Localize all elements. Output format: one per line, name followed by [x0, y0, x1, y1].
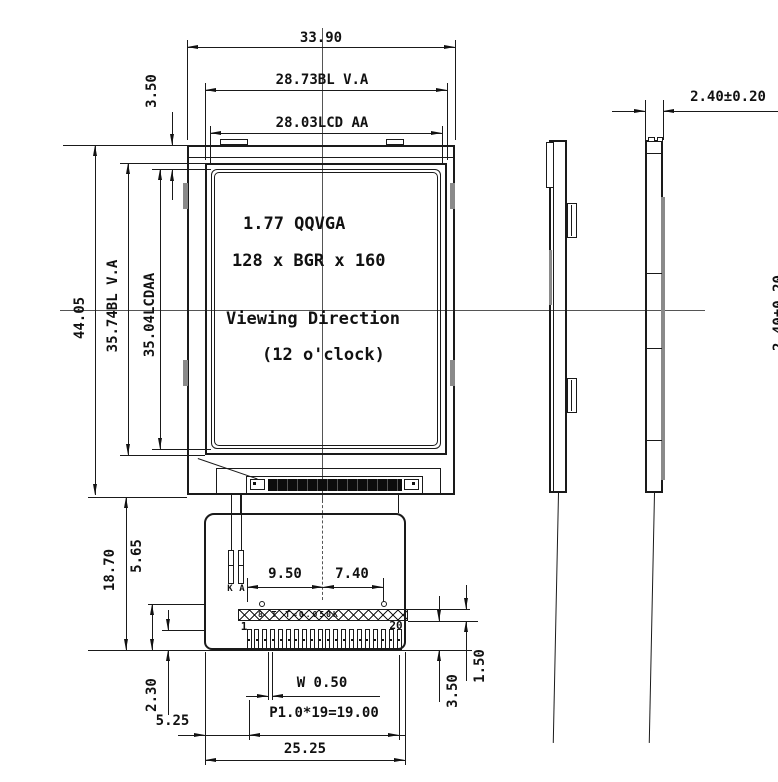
dim-line-overall-height — [95, 145, 96, 495]
ext-line — [399, 655, 400, 740]
side-view1-tab-upper — [567, 203, 577, 238]
fpc-pin-dot — [319, 639, 321, 641]
dim-line-lcdaa-width — [210, 133, 442, 134]
ext-line — [268, 652, 269, 700]
arrowhead — [150, 639, 154, 650]
arrowhead — [323, 585, 334, 589]
arrowhead — [247, 585, 258, 589]
ext-line — [247, 578, 248, 602]
frame-top-lip-line — [189, 157, 453, 158]
ext-line — [405, 652, 406, 765]
arrowhead — [437, 610, 441, 621]
fpc-pin-dot — [374, 639, 376, 641]
dim-line-fpc-total — [126, 497, 127, 650]
dim-fpc-upper: 5.65 — [130, 531, 144, 581]
dim-thickness-clipped: 2.40±0.20 — [772, 268, 778, 358]
ext-line — [383, 578, 384, 602]
frame-bottom-step-line — [216, 468, 440, 469]
side-view1-top-step — [546, 142, 554, 188]
arrowhead — [663, 109, 674, 113]
dim-thickness: 2.40±0.20 — [678, 90, 778, 104]
backlight-pin-a-mark — [238, 565, 244, 566]
ext-line — [152, 449, 211, 450]
dim-pin-pitch: P1.0*19=19.00 — [254, 706, 394, 720]
ext-line — [205, 83, 206, 160]
side-view2-layer-line — [646, 273, 662, 274]
arrowhead — [464, 598, 468, 609]
side-view1-fpc-tail — [553, 493, 559, 743]
arrowhead — [394, 758, 405, 762]
fpc-pin-dot — [382, 639, 384, 641]
dim-overall-height: 44.05 — [73, 288, 87, 348]
backlight-pin-k-mark — [228, 565, 234, 566]
dim-connector-width: 25.25 — [275, 742, 335, 756]
arrowhead — [166, 619, 170, 630]
dim-line-pin-width-right — [272, 696, 380, 697]
backlight-pin-a — [238, 550, 244, 584]
viewing-direction-label: Viewing Direction — [226, 309, 400, 329]
backlight-pin-k — [228, 550, 234, 584]
backlight-lead-k — [231, 495, 232, 551]
arrowhead — [272, 694, 283, 698]
arrowhead — [158, 438, 162, 449]
side-view1-shade — [549, 250, 552, 305]
cathode-label: K — [224, 585, 236, 594]
ext-line — [447, 83, 448, 160]
frame-bottom-step-left — [216, 468, 217, 495]
dim-pin-area-height: 3.50 — [446, 666, 460, 716]
fpc-pin-dot — [272, 639, 274, 641]
alignment-hole-left — [259, 601, 265, 607]
ext-line — [63, 145, 187, 146]
ext-line — [88, 497, 187, 498]
arrowhead — [158, 169, 162, 180]
side-view1-inner-line — [553, 142, 554, 491]
arrowhead — [170, 170, 174, 181]
arrowhead — [205, 758, 216, 762]
ext-line — [663, 100, 664, 140]
arrowhead — [436, 88, 447, 92]
arrowhead — [312, 585, 323, 589]
arrowhead — [124, 497, 128, 508]
arrowhead — [249, 733, 260, 737]
side-view1-tab-inner — [571, 380, 572, 411]
dim-blva-height: 35.74BL V.A — [106, 241, 120, 371]
ext-line — [120, 163, 205, 164]
fpc-pin-dot — [343, 639, 345, 641]
fpc-pin-dot — [288, 639, 290, 641]
arrowhead — [437, 650, 441, 661]
arrowhead — [257, 694, 268, 698]
arrowhead — [210, 131, 221, 135]
fpc-pin-dot — [398, 639, 400, 641]
panel-resolution-label: 128 x BGR x 160 — [232, 251, 386, 271]
fpc-pin-dot — [264, 639, 266, 641]
panel-size-label: 1.77 QQVGA — [243, 214, 345, 234]
frame-bottom-step-right — [440, 468, 441, 495]
arrowhead — [126, 163, 130, 174]
fpc-neck-right — [398, 495, 399, 513]
dim-overall-width: 33.90 — [296, 31, 346, 45]
cog-pad-dot — [253, 482, 256, 485]
ext-line — [455, 40, 456, 140]
dim-line-lcdaa-height — [160, 169, 161, 449]
ext-line — [162, 630, 204, 631]
dim-lcdaa-width: 28.03LCD AA — [262, 116, 382, 130]
clock-direction-label: (12 o'clock) — [262, 345, 385, 365]
arrowhead — [444, 45, 455, 49]
arrowhead — [634, 109, 645, 113]
side-view2-top-notch — [648, 137, 655, 142]
dim-line-connector-width — [205, 760, 405, 761]
arrowhead — [93, 484, 97, 495]
side-view1-tab-lower — [567, 378, 577, 413]
arrowhead — [187, 45, 198, 49]
ext-line — [205, 652, 206, 765]
arrowhead — [170, 134, 174, 145]
dim-pin-edge-offset: 5.25 — [145, 714, 200, 728]
arrowhead — [205, 88, 216, 92]
fpc-pin-dot — [366, 639, 368, 641]
arrowhead — [150, 604, 154, 615]
dim-blva-width: 28.73BL V.A — [262, 73, 382, 87]
ext-line — [272, 652, 273, 700]
side-view2-fpc-tail — [649, 493, 655, 743]
dim-top-margin: 3.50 — [145, 66, 159, 116]
side-view2-layer-line — [646, 348, 662, 349]
dim-hole-left: 9.50 — [260, 567, 310, 581]
fpc-pin-dot — [295, 639, 297, 641]
dim-line-pitch — [178, 735, 405, 736]
frame-tab-right-lower — [450, 360, 455, 386]
lcd-module-dimension-drawing: 1.77 QQVGA 128 x BGR x 160 Viewing Direc… — [0, 0, 778, 782]
fpc-pin-dot — [335, 639, 337, 641]
arrowhead — [194, 733, 205, 737]
fpc-pin-dot — [359, 639, 361, 641]
fpc-pin-dot — [311, 639, 313, 641]
ext-line — [442, 126, 443, 163]
side-view2-layer-line — [646, 153, 662, 154]
ext-line — [645, 100, 646, 140]
fpc-pin-dot — [248, 639, 250, 641]
arrowhead — [372, 585, 383, 589]
arrowhead — [166, 650, 170, 661]
frame-tab-left-lower — [183, 360, 188, 386]
fpc-pin-dot — [390, 639, 392, 641]
fpc-pin-dot — [280, 639, 282, 641]
frame-top-bump-right — [386, 139, 404, 145]
frame-tab-left-upper — [183, 183, 188, 209]
dim-line-thickness-right — [663, 111, 778, 112]
dim-pin-width: W 0.50 — [287, 676, 357, 690]
side-view1-body — [549, 140, 567, 493]
arrowhead — [124, 639, 128, 650]
dim-lcdaa-height: 35.04LCDAA — [143, 255, 157, 375]
cog-driver-strip — [268, 479, 402, 491]
dim-line-blva-height — [128, 163, 129, 455]
dim-stiffener-height: 1.50 — [473, 641, 487, 691]
arrowhead — [126, 444, 130, 455]
fpc-pin-dot — [303, 639, 305, 641]
arrowhead — [464, 621, 468, 632]
arrowhead — [388, 733, 399, 737]
fpc-pin-dot — [256, 639, 258, 641]
frame-tab-right-upper — [450, 183, 455, 209]
arrowhead — [431, 131, 442, 135]
fpc-pin-dot — [327, 639, 329, 641]
dim-line-blva-width — [205, 90, 447, 91]
ext-line — [120, 455, 205, 456]
dim-hole-right: 7.40 — [327, 567, 377, 581]
frame-top-bump-left — [220, 139, 248, 145]
backlight-lead-a — [241, 495, 242, 551]
side-view2-layer-line — [646, 440, 662, 441]
ext-line — [187, 40, 188, 140]
fpc-pin-dot — [351, 639, 353, 641]
stiffener-note: 8 T T=0.050K — [258, 611, 368, 619]
dim-fpc-total: 18.70 — [103, 535, 117, 605]
dim-line-overall-width — [187, 47, 455, 48]
ext-line — [148, 604, 204, 605]
alignment-hole-right — [381, 601, 387, 607]
ext-line-bottom — [88, 650, 472, 651]
side-view2-glass-edge-shade — [661, 197, 665, 480]
side-view1-tab-inner — [571, 205, 572, 236]
arrowhead — [93, 145, 97, 156]
cog-pad-dot — [412, 482, 415, 485]
